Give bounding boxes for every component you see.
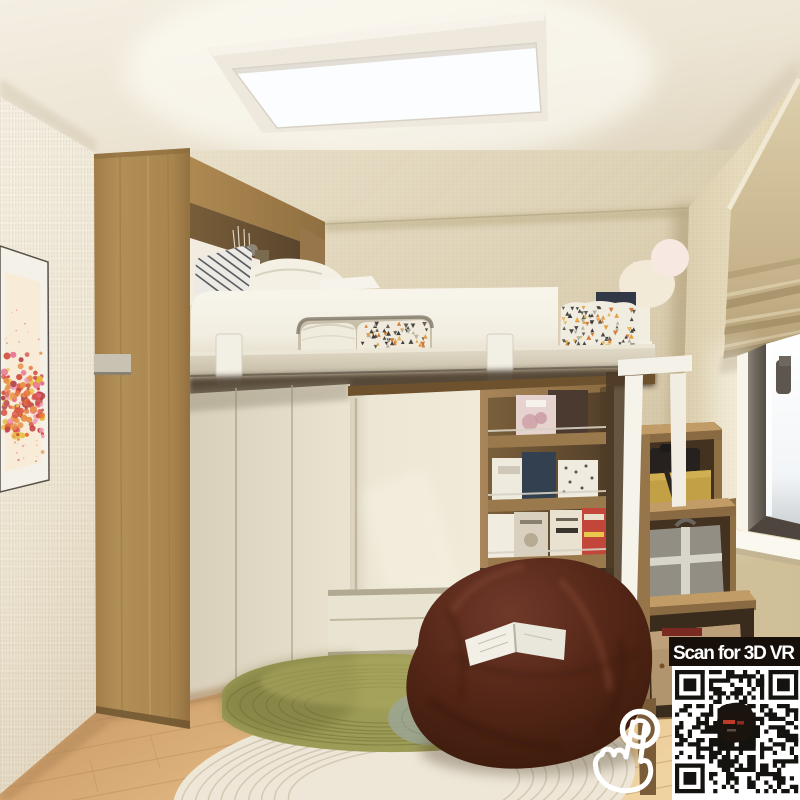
svg-text:Scan for 3D VR: Scan for 3D VR: [673, 643, 795, 664]
